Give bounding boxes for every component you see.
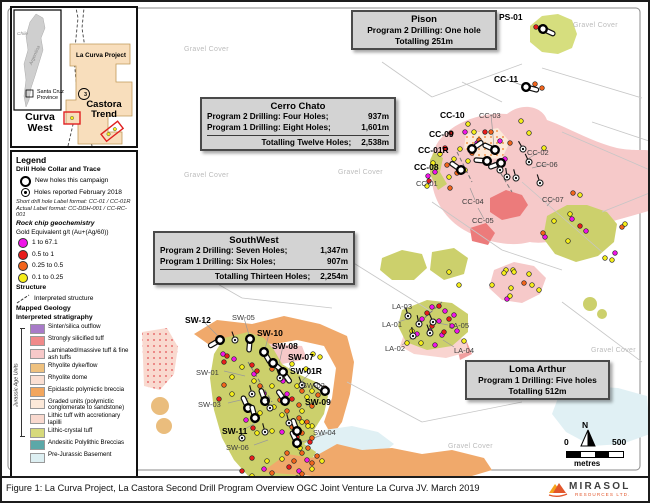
geochem-dot [230, 392, 235, 397]
geochem-dot [244, 418, 249, 423]
structure-line [462, 82, 502, 102]
geochem-dot [250, 456, 255, 461]
geochem-dot [527, 131, 532, 136]
geochem-dot [426, 174, 431, 179]
geochem-dot [443, 146, 448, 151]
geochem-dot [512, 270, 517, 275]
legend-structure-heading: Structure [16, 284, 132, 292]
geochem-dot [285, 392, 290, 397]
geochem-dot [438, 152, 443, 157]
structure-line [542, 68, 642, 98]
geochem-dot [300, 472, 305, 477]
mirasol-logo-name: MIRASOL [569, 481, 631, 492]
geology-olive-small [597, 309, 607, 319]
geochem-dot [280, 413, 285, 418]
infobox-pison-title: Pison [358, 14, 490, 25]
geochem-dot [270, 384, 275, 389]
strat-unit-swatch [30, 414, 45, 424]
infobox-loma-arthur-line1: Program 1 Drilling: Five holes [472, 375, 603, 386]
geochem-class-row: 0.1 to 0.25 [16, 273, 132, 283]
geochem-dot [443, 309, 448, 314]
geochem-dot [310, 461, 315, 466]
geochem-class-row: 0.25 to 0.5 [16, 261, 132, 271]
structure-line [347, 382, 422, 422]
geochem-class-label: 0.25 to 0.5 [32, 262, 63, 270]
geochem-dot [255, 431, 260, 436]
scale-units-label: metres [574, 459, 600, 468]
geochem-dot [304, 367, 309, 372]
legend-collar-heading: Drill Hole Collar and Trace [16, 166, 132, 174]
legend-geology-heading: Mapped Geology [16, 305, 132, 313]
geochem-dot [490, 283, 495, 288]
reported-hole-symbol [21, 188, 30, 197]
strat-unit-swatch [30, 440, 45, 450]
geochem-dot [437, 319, 442, 324]
geochem-dot [222, 360, 227, 365]
geochem-dot [310, 436, 315, 441]
infobox-pison-line1: Program 2 Drilling: One hole [358, 25, 490, 36]
geochem-dot [584, 229, 589, 234]
geochem-dot [300, 389, 305, 394]
strat-unit-row: Laminated/massive tuff & fine ash tuffs [30, 348, 132, 361]
geochem-dot [445, 163, 450, 168]
geochem-dot [425, 311, 430, 316]
structure-line [242, 298, 332, 308]
geochem-dot [290, 362, 295, 367]
geochem-dot [280, 457, 285, 462]
geology-pink-center [489, 262, 546, 303]
geochem-dot [315, 454, 320, 459]
geochem-dot [566, 239, 571, 244]
jurassic-age-label: Jurassic Age Units [14, 364, 20, 408]
geochem-dot [542, 146, 547, 151]
geochem-dot [463, 130, 468, 135]
infobox-southwest: SouthWest Program 2 Drilling: Seven Hole… [153, 231, 355, 285]
geochem-class-label: 0.5 to 1 [32, 251, 54, 259]
geochem-dot [466, 122, 471, 127]
legend-geochem-subheading: Gold Equivalent g/t (Au+(Ag/60)) [16, 229, 132, 237]
strat-unit-swatch [30, 428, 45, 438]
legend-strat-heading: Interpreted stratigraphy [16, 314, 132, 322]
scale-start-label: 0 [564, 437, 569, 447]
geochem-dot [285, 409, 290, 414]
strat-unit-swatch [30, 453, 45, 463]
geochem-dot [610, 258, 615, 263]
geochem-dot [530, 283, 535, 288]
north-arrow-icon [580, 429, 596, 447]
geochem-class-swatch [18, 261, 28, 271]
geochem-dot [533, 82, 538, 87]
scale-end-label: 500 [612, 437, 626, 447]
geochem-dot [472, 130, 477, 135]
geochem-dot [433, 170, 438, 175]
geochem-dot [419, 341, 424, 346]
geology-rhyolite-left [151, 397, 169, 415]
legend-note-short-format: Short drill hole Label format: CC-01 / C… [16, 199, 132, 206]
geochem-dot [305, 458, 310, 463]
strat-unit-row: Epiclastic polymictic breccia [30, 387, 132, 398]
geochem-dot [578, 193, 583, 198]
geochem-dot [455, 329, 460, 334]
geochem-dot [285, 451, 290, 456]
geochem-dot [306, 446, 311, 451]
geochem-dot [447, 270, 452, 275]
strat-unit-row: Andesitic Polylithic Breccias [30, 440, 132, 451]
strat-unit-label: Graded units (polymictic conglomerate to… [48, 399, 132, 412]
geology-olive-center [380, 250, 427, 280]
geochem-dot [300, 451, 305, 456]
infobox-loma-arthur-title: Loma Arthur [472, 364, 603, 375]
geochem-dot [570, 217, 575, 222]
geochem-class-swatch [18, 250, 28, 260]
infobox-loma-arthur-line2: Totalling 512m [472, 386, 603, 397]
geochem-dot [537, 288, 542, 293]
geology-olive-right [543, 205, 617, 262]
strat-unit-label: Epiclastic polymictic breccia [48, 387, 124, 393]
strat-unit-swatch [30, 324, 45, 334]
geochem-dot [240, 469, 245, 474]
geochem-dot [447, 317, 452, 322]
geochem-dot [425, 184, 430, 189]
geochem-dot [300, 409, 305, 414]
mirasol-logo-subtitle: RESOURCES LTD. [575, 492, 630, 497]
row-label: Program 2 Drilling: Four Holes; [207, 112, 328, 123]
strat-unit-row: Lithic tuff with accretionary lapilli [30, 413, 132, 426]
geochem-dot [270, 429, 275, 434]
route-shield-number: 3 [84, 92, 87, 98]
geochem-dot [509, 286, 514, 291]
geochem-dot [232, 357, 237, 362]
geochem-dot [578, 224, 583, 229]
geochem-dot [450, 324, 455, 329]
geochem-dot [270, 471, 275, 476]
geochem-dot [225, 354, 230, 359]
geochem-dot [452, 313, 457, 318]
row-label: Program 1 Drilling: Six Holes; [160, 257, 276, 268]
geochem-dot [255, 369, 260, 374]
structure-line [432, 64, 522, 97]
strat-unit-row: Graded units (polymictic conglomerate to… [30, 399, 132, 412]
geochem-dot [527, 272, 532, 277]
mirasol-logo-icon [547, 480, 569, 498]
geochem-dot [297, 416, 302, 421]
legend-structure-label: Interpreted structure [34, 295, 93, 303]
geochem-dot [430, 305, 435, 310]
geochem-dot [287, 465, 292, 470]
strat-unit-label: Andesitic Polylithic Breccias [48, 440, 124, 446]
infobox-cerro-chato-title: Cerro Chato [207, 101, 389, 112]
strat-unit-swatch [30, 336, 45, 346]
strat-unit-label: Sinter/silica outflow [48, 324, 101, 330]
strat-unit-swatch [30, 399, 45, 409]
geochem-dot [447, 175, 452, 180]
infobox-pison: Pison Program 2 Drilling: One hole Total… [351, 10, 497, 50]
geochem-dot [437, 304, 442, 309]
geochem-dot [230, 375, 235, 380]
row-label: Program 2 Drilling: Seven Holes; [160, 246, 287, 257]
geochem-dot [568, 212, 573, 217]
geochem-dot [310, 404, 315, 409]
scale-bar: N 0 500 metres [558, 420, 646, 474]
inset-label-province: Santa Cruz Province [37, 90, 73, 102]
geochem-dot [489, 130, 494, 135]
geochem-dot [508, 294, 513, 299]
legend-reported-holes-label: Holes reported February 2018 [34, 189, 122, 197]
geochem-dot [534, 25, 539, 30]
geochem-dot [519, 119, 524, 124]
inset-label-chile: Chile [17, 32, 28, 37]
inset-map: Chile Argentina Santa Cruz Province 3 La… [10, 6, 138, 148]
geochem-dot [262, 467, 267, 472]
geochem-dot [420, 317, 425, 322]
total-value: 2,254m [320, 272, 348, 281]
geochem-class-label: 0.1 to 0.25 [32, 274, 63, 282]
geochem-class-list: 1 to 67.10.5 to 10.25 to 0.50.1 to 0.25 [16, 238, 132, 283]
geochem-dot [466, 159, 471, 164]
geochem-dot [433, 343, 438, 348]
geochem-dot [541, 231, 546, 236]
geology-rhyolite-left [156, 418, 172, 434]
geochem-dot [310, 467, 315, 472]
geochem-dot [316, 393, 321, 398]
geochem-dot [552, 219, 557, 224]
geochem-dot [613, 251, 618, 256]
geochem-dot [457, 283, 462, 288]
structure-line [382, 62, 432, 97]
strat-unit-row: Rhyolite dome [30, 375, 132, 386]
geochem-dot [250, 363, 255, 368]
geochem-class-swatch [18, 238, 28, 248]
geochem-dot [300, 420, 305, 425]
inset-label-castora-trend: Castora Trend [74, 100, 134, 119]
geochem-dot [522, 281, 527, 286]
strat-unit-label: Lithic tuff with accretionary lapilli [48, 413, 132, 426]
new-hole-symbol [20, 176, 31, 187]
geochem-dot [431, 161, 436, 166]
geochem-dot [292, 459, 297, 464]
total-label: Totalling Thirteen Holes; [215, 272, 310, 281]
strat-unit-swatch [30, 349, 45, 359]
geochem-dot [498, 139, 503, 144]
geochem-dot [318, 355, 323, 360]
geochem-dot [258, 384, 263, 389]
geochem-dot [297, 403, 302, 408]
geology-olive-small [583, 297, 597, 311]
total-value: 2,538m [361, 138, 389, 147]
infobox-southwest-title: SouthWest [160, 235, 348, 246]
geochem-dot [449, 131, 454, 136]
total-label: Totalling Twelve Holes; [261, 138, 351, 147]
geochem-dot [603, 256, 608, 261]
geochem-dot [222, 383, 227, 388]
geochem-dot [540, 86, 545, 91]
row-value: 1,601m [351, 123, 389, 134]
geochem-dot [290, 397, 295, 402]
geochem-dot [310, 389, 315, 394]
legend-new-holes-label: New holes this campaign [35, 177, 108, 185]
geochem-dot [623, 222, 628, 227]
jurassic-age-bracket: Jurassic Age Units [21, 328, 22, 437]
geochem-class-swatch [18, 273, 28, 283]
strat-unit-row: Lithic-crystal tuff [30, 428, 132, 439]
geochem-dot [240, 365, 245, 370]
strat-unit-row: Pre-Jurassic Basement [30, 452, 132, 463]
geology-lithic-tuff-left [142, 328, 178, 390]
inset-label-curva-west: Curva West [14, 112, 66, 133]
geochem-dot [306, 424, 311, 429]
geology-olive-center [430, 248, 468, 280]
geochem-dot [320, 459, 325, 464]
geochem-dot [458, 147, 463, 152]
structure-line [422, 402, 522, 422]
legend-geochem-heading: Rock chip geochemistry [16, 220, 132, 228]
strat-unit-label: Laminated/massive tuff & fine ash tuffs [48, 348, 132, 361]
geochem-dot [305, 395, 310, 400]
strat-unit-row: Rhyolite dyke/flow [30, 363, 132, 374]
geochem-dot [405, 341, 410, 346]
geochem-dot [452, 157, 457, 162]
row-value: 907m [310, 257, 348, 268]
geochem-dot [311, 352, 316, 357]
legend-title: Legend [16, 155, 132, 165]
legend-panel: Legend Drill Hole Collar and Trace New h… [10, 150, 138, 478]
stratigraphy-list: Sinter/silica outflowStrongly silicified… [30, 324, 132, 463]
mirasol-logo: MIRASOL RESOURCES LTD. [545, 479, 645, 500]
scale-bar-graphic [566, 451, 624, 458]
legend-note-actual-format: Actual Label format: CC-DDH-001 / CC-RC-… [16, 206, 132, 219]
strat-unit-label: Lithic-crystal tuff [48, 428, 92, 434]
infobox-cerro-chato: Cerro Chato Program 2 Drilling: Four Hol… [200, 97, 396, 151]
geochem-dot [508, 141, 513, 146]
geochem-dot [427, 179, 432, 184]
strat-unit-swatch [30, 375, 45, 385]
geochem-dot [462, 339, 467, 344]
caption-bar: Figure 1: La Curva Project, La Castora S… [2, 478, 648, 501]
geochem-dot [571, 191, 576, 196]
geochem-dot [251, 426, 256, 431]
geochem-dot [483, 130, 488, 135]
strat-unit-row: Strongly silicified tuff [30, 336, 132, 347]
interpreted-structure-symbol [16, 294, 30, 304]
geochem-dot [502, 271, 507, 276]
strat-unit-swatch [30, 387, 45, 397]
geochem-dot [280, 430, 285, 435]
geochem-dot [252, 379, 257, 384]
figure-page: PS-01CC-11CC-10CC-03CC-09CC-01RCC-02CC-0… [0, 0, 650, 503]
strat-unit-row: Sinter/silica outflow [30, 324, 132, 335]
row-value: 937m [351, 112, 389, 123]
strat-unit-label: Rhyolite dyke/flow [48, 363, 98, 369]
strat-unit-swatch [30, 363, 45, 373]
geochem-dot [217, 397, 222, 402]
geochem-class-label: 1 to 67.1 [32, 239, 58, 247]
row-value: 1,347m [310, 246, 348, 257]
geochem-class-row: 1 to 67.1 [16, 238, 132, 248]
figure-caption: Figure 1: La Curva Project, La Castora S… [6, 483, 480, 493]
strat-unit-label: Pre-Jurassic Basement [48, 452, 111, 458]
strat-unit-label: Strongly silicified tuff [48, 336, 104, 342]
map-area: PS-01CC-11CC-10CC-03CC-09CC-01RCC-02CC-0… [2, 2, 648, 478]
infobox-pison-line2: Totalling 251m [358, 36, 490, 47]
geochem-dot [448, 186, 453, 191]
geochem-dot [265, 459, 270, 464]
geochem-dot [442, 330, 447, 335]
geochem-class-row: 0.5 to 1 [16, 250, 132, 260]
inset-label-project: La Curva Project [70, 52, 132, 59]
infobox-loma-arthur: Loma Arthur Program 1 Drilling: Five hol… [465, 360, 610, 400]
row-label: Program 1 Drilling: Eight Holes; [207, 123, 331, 134]
strat-unit-label: Rhyolite dome [48, 375, 87, 381]
